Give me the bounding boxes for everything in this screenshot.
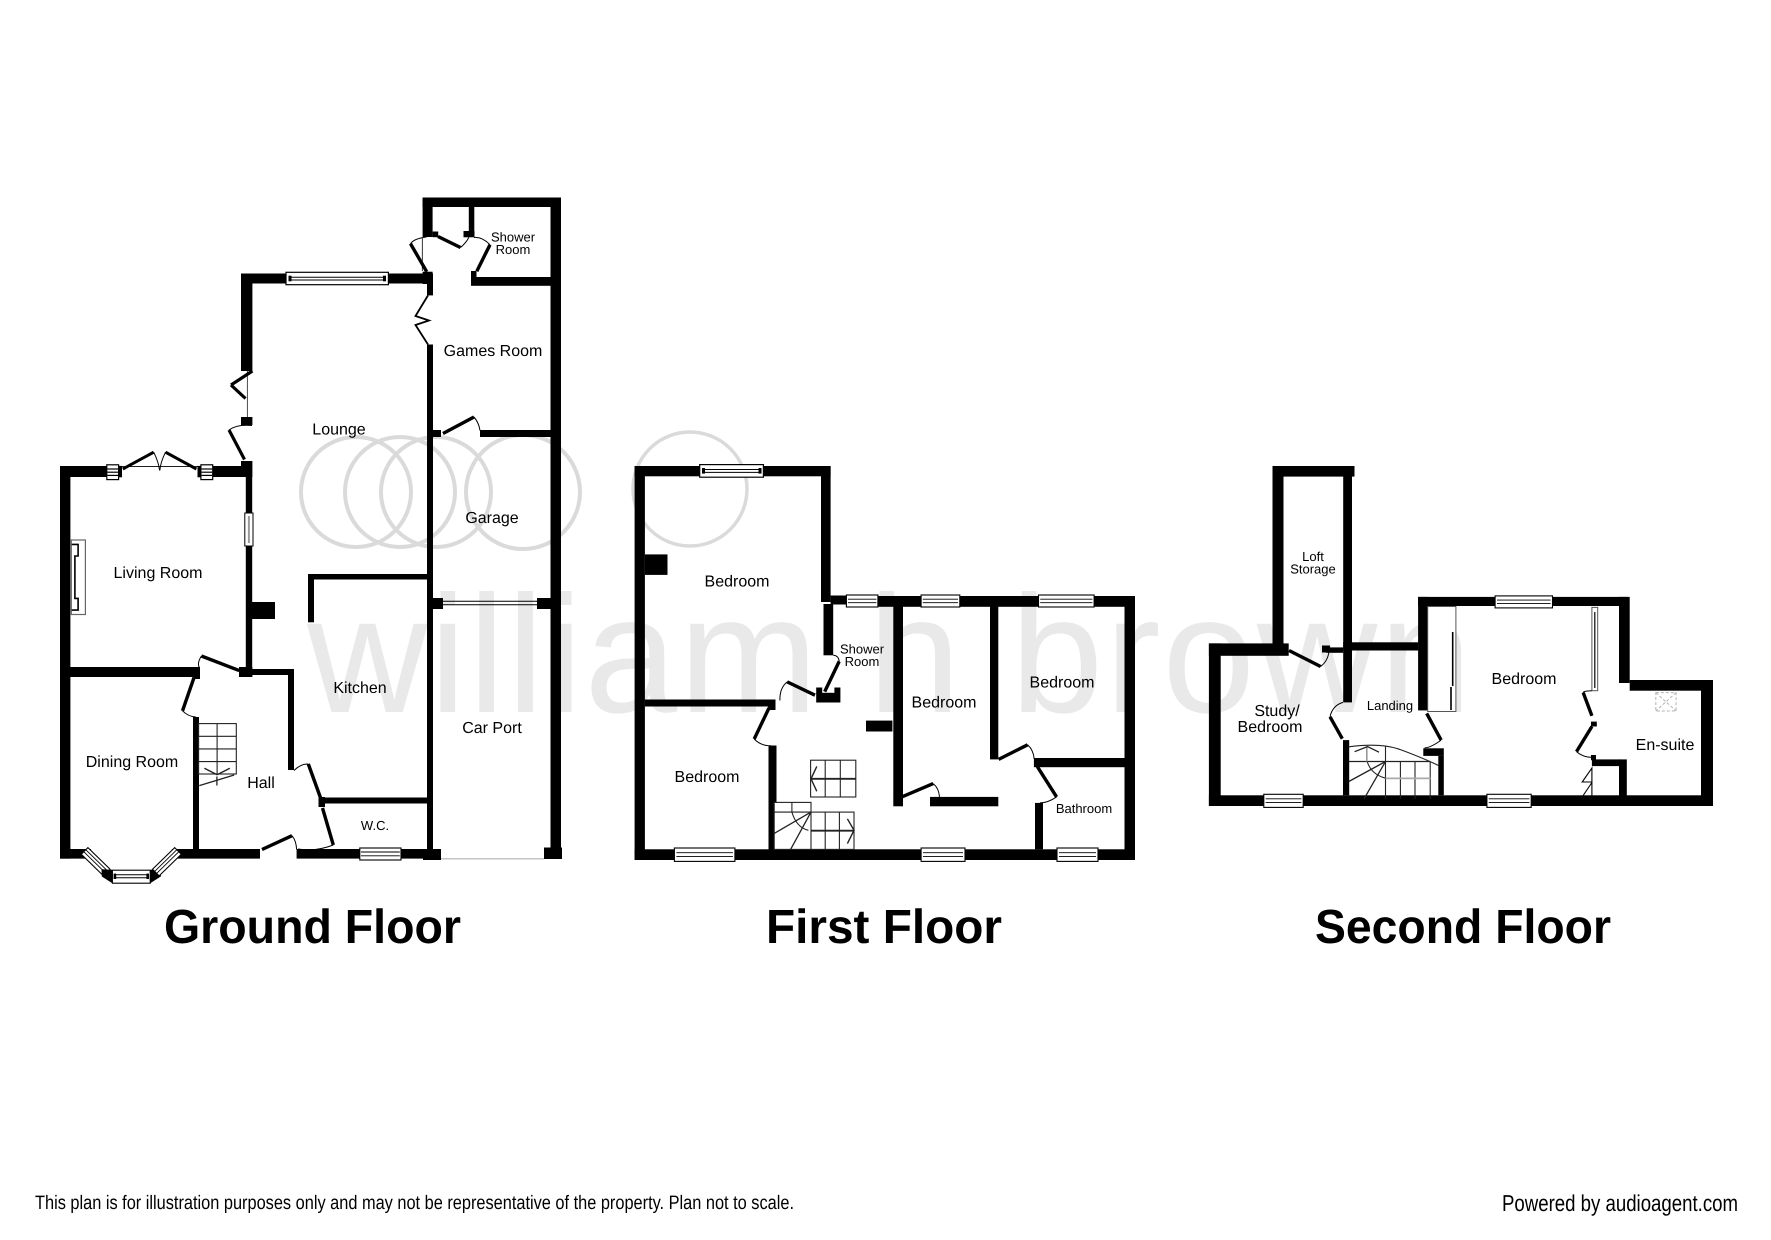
svg-text:Storage: Storage <box>1290 562 1336 577</box>
svg-text:This plan is for illustration: This plan is for illustration purposes o… <box>35 1192 794 1214</box>
svg-text:Hall: Hall <box>247 775 275 792</box>
svg-text:Lounge: Lounge <box>312 422 365 439</box>
svg-text:Bedroom: Bedroom <box>1030 675 1095 692</box>
svg-text:Bedroom: Bedroom <box>912 695 977 712</box>
svg-text:Car Port: Car Port <box>462 720 522 737</box>
svg-text:En-suite: En-suite <box>1636 737 1695 754</box>
svg-text:Garage: Garage <box>465 510 518 527</box>
svg-text:Bedroom: Bedroom <box>705 574 770 591</box>
svg-text:W.C.: W.C. <box>361 818 389 833</box>
svg-text:Bedroom: Bedroom <box>1238 719 1303 736</box>
svg-text:Bedroom: Bedroom <box>675 769 740 786</box>
svg-text:Bedroom: Bedroom <box>1492 671 1557 688</box>
svg-text:First Floor: First Floor <box>766 901 1002 954</box>
svg-text:Games Room: Games Room <box>444 343 543 360</box>
svg-text:Room: Room <box>845 654 880 669</box>
svg-text:Powered by audioagent.com: Powered by audioagent.com <box>1502 1190 1738 1216</box>
svg-text:Second Floor: Second Floor <box>1315 901 1611 954</box>
svg-text:Ground Floor: Ground Floor <box>164 901 461 954</box>
svg-text:Study/: Study/ <box>1254 703 1300 720</box>
svg-text:Dining Room: Dining Room <box>86 754 178 771</box>
svg-text:Landing: Landing <box>1367 698 1413 713</box>
svg-text:Room: Room <box>496 242 531 257</box>
svg-text:Living Room: Living Room <box>114 565 203 582</box>
svg-text:Kitchen: Kitchen <box>333 680 386 697</box>
svg-text:Bathroom: Bathroom <box>1056 801 1112 816</box>
